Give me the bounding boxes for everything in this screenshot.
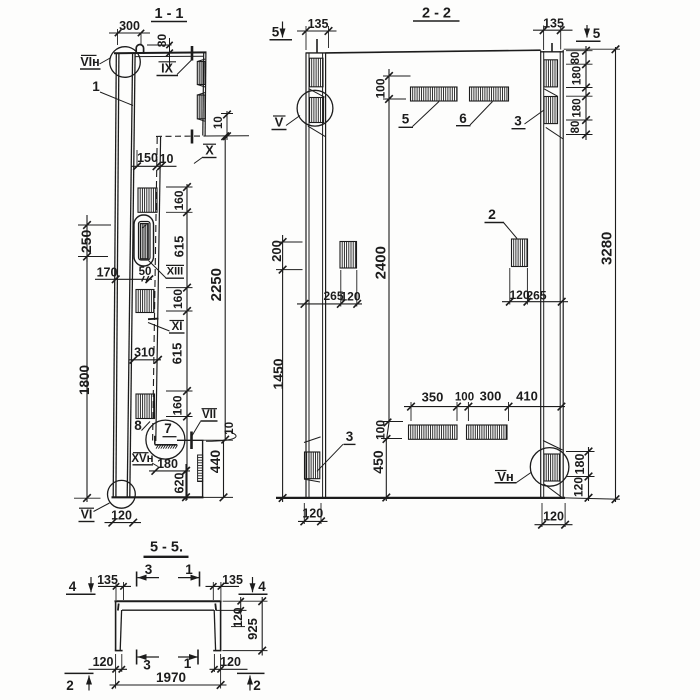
svg-text:620: 620 — [173, 473, 187, 494]
svg-text:2: 2 — [488, 206, 496, 222]
svg-text:VII: VII — [202, 409, 216, 421]
svg-text:4: 4 — [69, 579, 77, 594]
svg-text:80: 80 — [570, 52, 582, 65]
svg-text:180: 180 — [572, 98, 584, 117]
svg-text:V: V — [275, 115, 284, 130]
svg-text:440: 440 — [207, 450, 223, 474]
svg-text:3280: 3280 — [599, 232, 616, 265]
svg-text:7: 7 — [164, 421, 172, 436]
svg-text:3: 3 — [143, 658, 151, 673]
svg-text:135: 135 — [222, 573, 243, 587]
svg-text:1: 1 — [185, 562, 193, 577]
svg-text:1 - 1: 1 - 1 — [154, 6, 183, 22]
svg-text:120: 120 — [572, 477, 586, 497]
svg-text:180: 180 — [572, 66, 584, 85]
svg-text:50: 50 — [139, 266, 152, 278]
svg-text:310: 310 — [134, 346, 155, 360]
svg-text:2 - 2: 2 - 2 — [422, 6, 451, 22]
svg-text:300: 300 — [480, 389, 502, 404]
svg-text:X: X — [205, 144, 214, 158]
svg-text:100: 100 — [374, 78, 388, 98]
svg-text:4: 4 — [258, 579, 266, 594]
svg-text:2: 2 — [253, 678, 261, 693]
svg-text:5: 5 — [593, 26, 601, 41]
svg-text:350: 350 — [422, 390, 444, 405]
svg-text:1450: 1450 — [270, 358, 286, 389]
svg-text:VIн: VIн — [80, 55, 99, 69]
svg-text:450: 450 — [370, 450, 386, 474]
svg-text:8: 8 — [134, 418, 142, 433]
svg-text:5: 5 — [402, 112, 410, 127]
svg-text:180: 180 — [573, 454, 587, 475]
svg-text:1: 1 — [92, 79, 100, 94]
svg-text:135: 135 — [308, 17, 329, 31]
svg-text:2250: 2250 — [208, 268, 225, 301]
svg-text:80: 80 — [570, 121, 582, 134]
svg-text:1800: 1800 — [77, 365, 92, 395]
svg-text:615: 615 — [170, 343, 185, 365]
svg-text:10: 10 — [224, 422, 236, 435]
svg-text:250: 250 — [78, 230, 94, 254]
svg-text:3: 3 — [514, 114, 522, 129]
svg-text:925: 925 — [245, 618, 260, 640]
svg-text:3: 3 — [346, 429, 354, 444]
svg-text:160: 160 — [171, 395, 185, 415]
svg-text:VI: VI — [81, 508, 93, 522]
svg-text:120: 120 — [302, 507, 323, 521]
svg-text:2: 2 — [66, 678, 74, 693]
svg-text:5: 5 — [272, 25, 280, 40]
svg-text:160: 160 — [172, 190, 186, 210]
svg-text:1970: 1970 — [156, 670, 186, 685]
svg-text:Vн: Vн — [497, 469, 514, 484]
svg-text:3: 3 — [145, 562, 153, 577]
svg-text:135: 135 — [97, 573, 118, 587]
svg-text:410: 410 — [516, 389, 538, 404]
svg-text:XIII: XIII — [167, 266, 184, 278]
svg-text:100: 100 — [374, 420, 388, 440]
svg-text:120: 120 — [93, 655, 114, 669]
svg-text:2400: 2400 — [373, 246, 390, 279]
svg-text:5 - 5.: 5 - 5. — [150, 540, 183, 556]
svg-text:170: 170 — [97, 266, 118, 280]
svg-text:XI: XI — [172, 321, 183, 333]
svg-text:180: 180 — [157, 457, 178, 471]
svg-text:615: 615 — [172, 236, 187, 258]
svg-text:XVн: XVн — [131, 453, 153, 465]
svg-text:300: 300 — [119, 19, 140, 33]
svg-text:6: 6 — [459, 111, 467, 126]
svg-text:160: 160 — [171, 289, 185, 309]
svg-text:10: 10 — [160, 152, 174, 166]
svg-text:IX: IX — [161, 62, 173, 76]
svg-text:100: 100 — [455, 392, 474, 404]
